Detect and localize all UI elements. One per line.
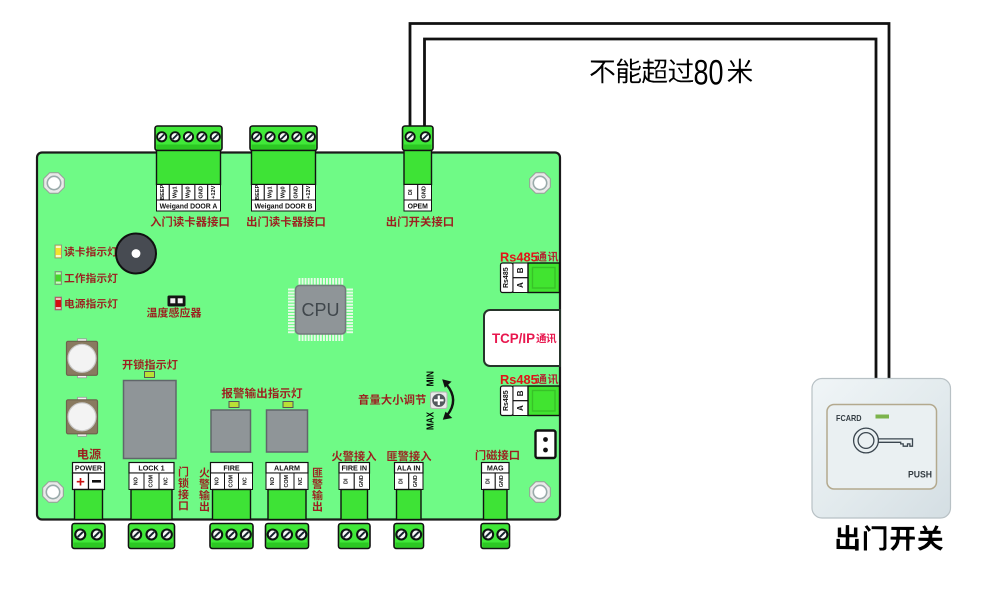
svg-text:GND: GND — [499, 475, 505, 487]
svg-text:Wg0: Wg0 — [186, 186, 192, 198]
svg-text:NC: NC — [298, 477, 304, 485]
svg-text:GND: GND — [422, 186, 428, 198]
svg-text:FCARD: FCARD — [836, 414, 862, 423]
svg-text:OPEM: OPEM — [408, 203, 429, 210]
svg-text:Rs485: Rs485 — [503, 390, 510, 411]
svg-text:COM: COM — [149, 474, 155, 487]
svg-text:Rs485: Rs485 — [500, 250, 538, 265]
svg-text:LOCK 1: LOCK 1 — [138, 464, 164, 473]
svg-text:NC: NC — [164, 477, 170, 485]
svg-text:FIRE IN: FIRE IN — [341, 464, 367, 473]
svg-text:TCP/IP: TCP/IP — [492, 331, 535, 346]
svg-text:Weigand DOOR A: Weigand DOOR A — [160, 203, 218, 210]
svg-text:GND: GND — [293, 186, 299, 198]
svg-text:Rs485: Rs485 — [503, 267, 510, 288]
svg-text:POWER: POWER — [75, 464, 103, 473]
svg-text:BEEP: BEEP — [160, 184, 166, 200]
svg-text:MAX: MAX — [425, 412, 437, 430]
svg-text:NO: NO — [215, 477, 221, 485]
svg-text:+12V: +12V — [306, 185, 312, 198]
svg-text:+: + — [76, 474, 85, 491]
svg-text:GND: GND — [359, 475, 365, 487]
svg-text:GND: GND — [198, 186, 204, 198]
svg-text:CPU: CPU — [301, 300, 339, 320]
svg-text:NC: NC — [243, 477, 249, 485]
svg-text:COM: COM — [229, 474, 235, 487]
svg-text:BEEP: BEEP — [255, 184, 261, 200]
svg-text:DI: DI — [344, 478, 350, 484]
svg-text:ALA IN: ALA IN — [397, 464, 421, 473]
svg-text:+12V: +12V — [211, 185, 217, 198]
svg-text:NO: NO — [134, 477, 140, 485]
svg-text:A: A — [516, 282, 525, 288]
svg-text:DI: DI — [485, 478, 491, 484]
svg-text:Rs485: Rs485 — [500, 372, 538, 387]
svg-text:Wg1: Wg1 — [268, 186, 274, 198]
svg-text:ALARM: ALARM — [274, 464, 300, 473]
svg-text:DI: DI — [399, 478, 405, 484]
svg-text:DI: DI — [408, 189, 414, 195]
svg-text:Weigand DOOR B: Weigand DOOR B — [254, 203, 312, 210]
svg-text:FIRE: FIRE — [223, 464, 240, 473]
svg-text:A: A — [516, 405, 525, 411]
svg-text:B: B — [516, 390, 525, 396]
svg-text:80: 80 — [694, 54, 724, 93]
svg-text:B: B — [516, 267, 525, 273]
svg-text:GND: GND — [413, 475, 419, 487]
svg-text:PUSH: PUSH — [908, 470, 932, 481]
svg-text:MIN: MIN — [425, 371, 437, 387]
svg-text:COM: COM — [284, 474, 290, 487]
svg-text:MAG: MAG — [487, 464, 504, 473]
svg-text:Wg0: Wg0 — [281, 186, 287, 198]
svg-text:NO: NO — [270, 477, 276, 485]
svg-text:Wg1: Wg1 — [173, 186, 179, 198]
